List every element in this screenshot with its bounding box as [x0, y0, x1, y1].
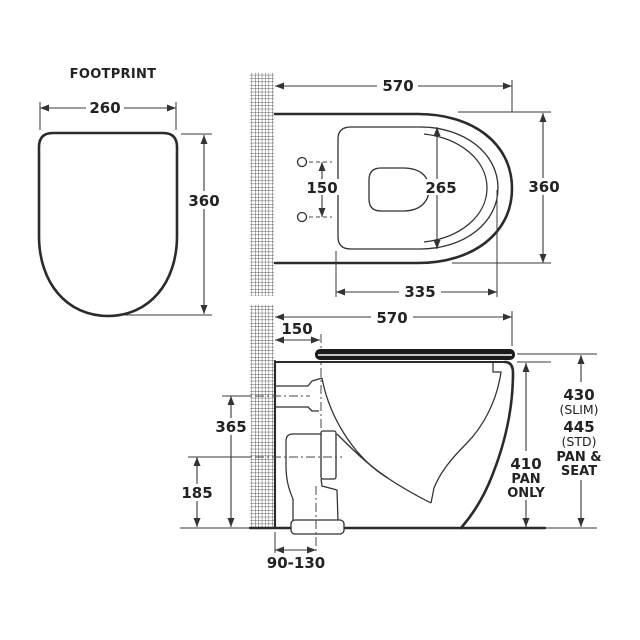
outlet-connector	[321, 431, 336, 479]
side-length-value: 570	[376, 309, 407, 327]
fixing-setout-value: 150	[281, 320, 312, 338]
footprint-width-value: 260	[89, 99, 120, 117]
wall-hatch-side	[250, 305, 274, 528]
footprint-depth-extension-lines	[120, 134, 212, 315]
footprint-title: FOOTPRINT	[70, 67, 157, 82]
pan-only-label-line2: ONLY	[507, 486, 545, 501]
technical-drawing-page: FOOTPRINT 260 360 570 150	[0, 0, 640, 640]
plan-width-value: 570	[382, 77, 413, 95]
bowl-opening-outline	[369, 168, 429, 211]
slim-height-label: (SLIM)	[559, 402, 598, 417]
outlet-floor-flange	[291, 520, 344, 534]
plan-depth-value: 360	[528, 178, 559, 196]
pan-side-outline	[461, 362, 513, 528]
wall-hatch-plan	[250, 73, 274, 296]
trap-to-bowl-curve	[337, 434, 388, 478]
seat-depth-value: 265	[425, 179, 456, 197]
outlet-height-value: 185	[181, 484, 212, 502]
outlet-setout-value: 90-130	[267, 554, 325, 572]
footprint-outline	[39, 133, 177, 316]
pan-back-and-rim-lines	[275, 361, 505, 528]
std-height-label: (STD)	[562, 434, 597, 449]
seat-length-value: 335	[404, 283, 435, 301]
fixing-hole-bottom	[298, 213, 307, 222]
pan-seat-label-line2: SEAT	[561, 464, 597, 479]
pan-height-value: 410	[510, 455, 541, 473]
toilet-dimension-drawing: FOOTPRINT 260 360 570 150	[0, 0, 640, 640]
fixing-centres-value: 150	[306, 179, 337, 197]
footprint-depth-value: 360	[188, 192, 219, 210]
plan-view: 570 150 265 360 335	[250, 73, 561, 301]
inlet-height-value: 365	[215, 418, 246, 436]
pan-only-label-line1: PAN	[511, 472, 540, 487]
side-view: 570 150 365 185	[177, 305, 606, 572]
pan-seat-label-line1: PAN &	[556, 450, 601, 465]
fixing-hole-top	[298, 158, 307, 167]
inlet-spigot-outline	[275, 378, 322, 411]
bowl-inner-left-curve	[322, 378, 431, 503]
footprint-view: FOOTPRINT 260 360	[39, 67, 221, 316]
